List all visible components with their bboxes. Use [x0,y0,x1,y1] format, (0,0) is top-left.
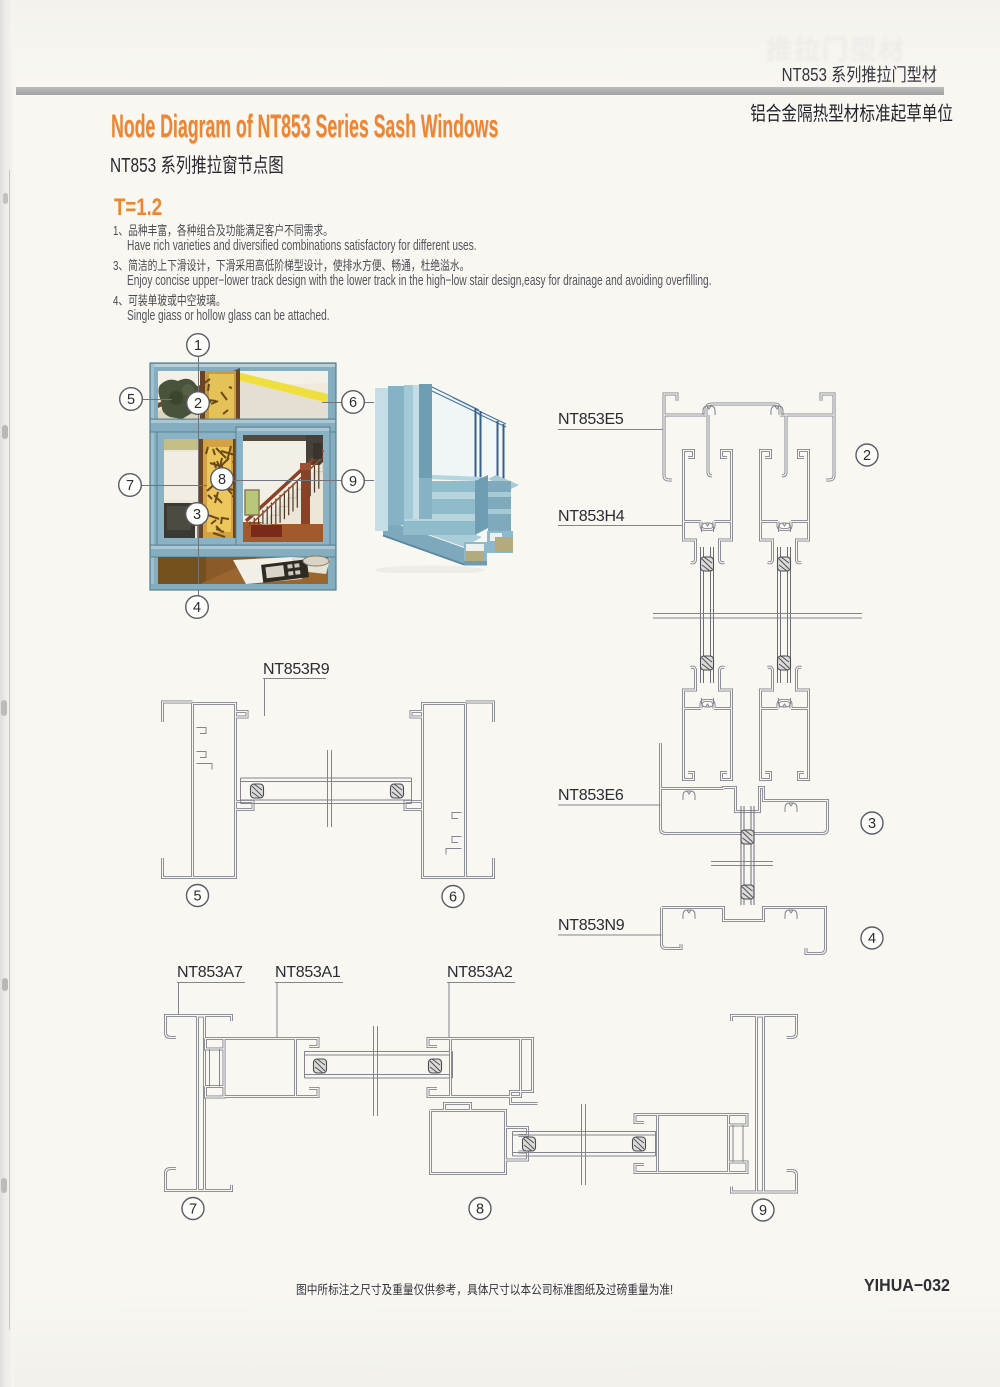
svg-text:NT853N9: NT853N9 [558,917,625,934]
svg-text:6: 6 [349,395,357,411]
svg-text:9: 9 [349,474,357,490]
svg-text:5: 5 [127,392,135,408]
svg-text:3: 3 [868,816,876,832]
svg-text:6: 6 [449,890,457,906]
svg-text:5: 5 [193,889,201,905]
svg-text:9: 9 [759,1203,767,1219]
svg-text:NT853A1: NT853A1 [275,964,341,981]
svg-text:2: 2 [194,396,202,412]
svg-text:3: 3 [193,507,201,523]
svg-text:1: 1 [194,338,202,354]
svg-text:8: 8 [476,1202,484,1218]
svg-text:4: 4 [193,600,201,616]
svg-text:8: 8 [218,472,226,488]
svg-text:7: 7 [126,478,134,494]
svg-text:NT853R9: NT853R9 [263,661,330,678]
svg-text:NT853A2: NT853A2 [447,964,513,981]
svg-text:7: 7 [189,1202,197,1218]
svg-text:4: 4 [868,931,876,947]
svg-text:NT853H4: NT853H4 [558,508,625,525]
svg-text:NT853E5: NT853E5 [558,411,624,428]
svg-text:2: 2 [863,448,871,464]
svg-text:NT853A7: NT853A7 [177,964,243,981]
